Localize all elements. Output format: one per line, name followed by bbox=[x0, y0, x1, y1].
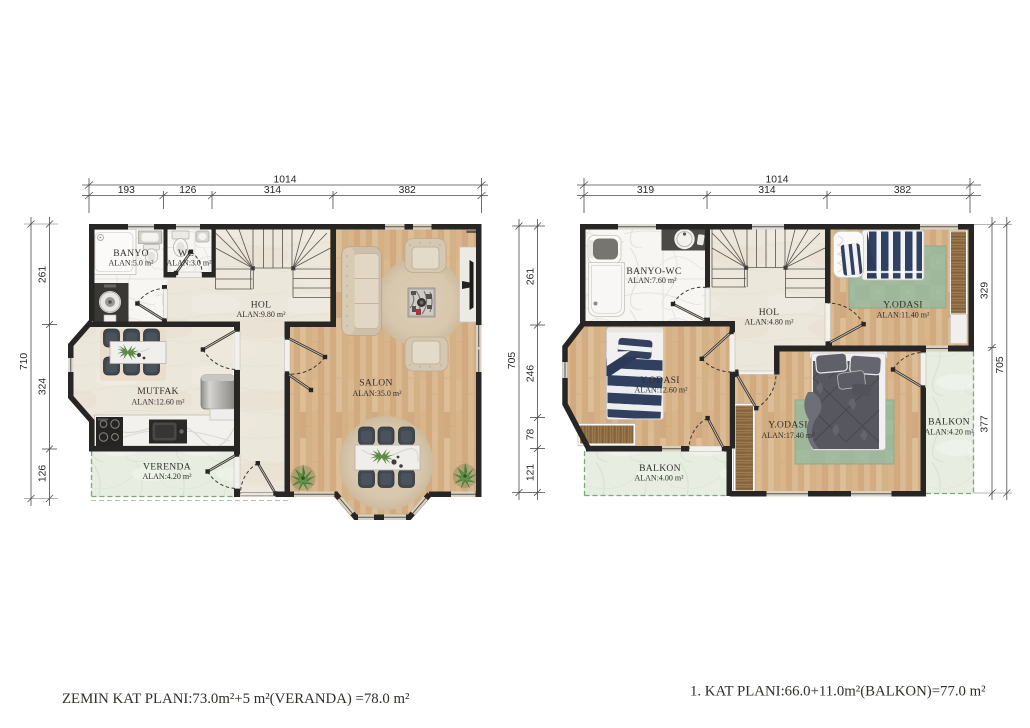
svg-text:ALAN:35.0 m²: ALAN:35.0 m² bbox=[352, 389, 402, 398]
svg-text:126: 126 bbox=[38, 465, 49, 482]
svg-text:BALKON: BALKON bbox=[639, 463, 681, 474]
svg-text:Y.ODASI: Y.ODASI bbox=[768, 420, 808, 431]
svg-text:ALAN:12.60 m²: ALAN:12.60 m² bbox=[131, 398, 185, 407]
svg-text:1014: 1014 bbox=[274, 175, 297, 186]
svg-text:ZEMIN KAT PLANI:73.0m²+5 m²(VE: ZEMIN KAT PLANI:73.0m²+5 m²(VERANDA) =78… bbox=[62, 691, 410, 707]
svg-text:WC: WC bbox=[178, 248, 194, 259]
svg-text:261: 261 bbox=[526, 268, 537, 285]
svg-text:193: 193 bbox=[118, 185, 135, 196]
svg-text:Y.ODASI: Y.ODASI bbox=[640, 375, 680, 386]
svg-text:VERENDA: VERENDA bbox=[143, 462, 191, 473]
svg-text:324: 324 bbox=[38, 378, 49, 395]
svg-text:382: 382 bbox=[399, 185, 416, 196]
svg-text:Y.ODASI: Y.ODASI bbox=[883, 300, 923, 311]
svg-text:705: 705 bbox=[995, 356, 1006, 373]
svg-text:382: 382 bbox=[894, 185, 911, 196]
svg-text:78: 78 bbox=[526, 429, 537, 441]
svg-text:1014: 1014 bbox=[766, 175, 789, 186]
svg-text:121: 121 bbox=[526, 464, 537, 481]
svg-text:HOL: HOL bbox=[759, 307, 780, 318]
svg-text:319: 319 bbox=[637, 185, 654, 196]
svg-text:1. KAT PLANI:66.0+11.0m²(BALKO: 1. KAT PLANI:66.0+11.0m²(BALKON)=77.0 m² bbox=[690, 684, 986, 700]
svg-text:MUTFAK: MUTFAK bbox=[137, 386, 179, 397]
svg-text:ALAN:17.40 m²: ALAN:17.40 m² bbox=[761, 431, 815, 440]
svg-text:SALON: SALON bbox=[359, 378, 392, 389]
svg-text:ALAN:5.0 m²: ALAN:5.0 m² bbox=[108, 259, 154, 268]
svg-text:377: 377 bbox=[980, 415, 991, 432]
svg-text:ALAN:7.60 m²: ALAN:7.60 m² bbox=[627, 276, 677, 285]
svg-text:ALAN:4.20 m²: ALAN:4.20 m² bbox=[142, 472, 192, 481]
svg-text:246: 246 bbox=[526, 365, 537, 382]
svg-text:ALAN:12.60 m²: ALAN:12.60 m² bbox=[634, 386, 688, 395]
svg-text:261: 261 bbox=[38, 266, 49, 283]
svg-text:ALAN:4.00 m²: ALAN:4.00 m² bbox=[634, 474, 684, 483]
svg-text:BANYO: BANYO bbox=[113, 248, 149, 259]
svg-text:314: 314 bbox=[264, 185, 281, 196]
svg-text:705: 705 bbox=[507, 352, 518, 369]
svg-text:ALAN:9.80 m²: ALAN:9.80 m² bbox=[236, 310, 286, 319]
svg-text:HOL: HOL bbox=[251, 300, 272, 311]
svg-text:BALKON: BALKON bbox=[928, 417, 970, 428]
svg-text:710: 710 bbox=[19, 353, 30, 370]
svg-text:329: 329 bbox=[980, 282, 991, 299]
svg-text:ALAN:11.40 m²: ALAN:11.40 m² bbox=[877, 311, 930, 320]
svg-text:ALAN:3.0 m²: ALAN:3.0 m² bbox=[166, 259, 212, 268]
svg-text:ALAN:4.20 m²: ALAN:4.20 m² bbox=[924, 428, 974, 437]
svg-text:ALAN:4.80 m²: ALAN:4.80 m² bbox=[744, 318, 794, 327]
svg-text:126: 126 bbox=[179, 185, 196, 196]
svg-text:314: 314 bbox=[758, 185, 775, 196]
